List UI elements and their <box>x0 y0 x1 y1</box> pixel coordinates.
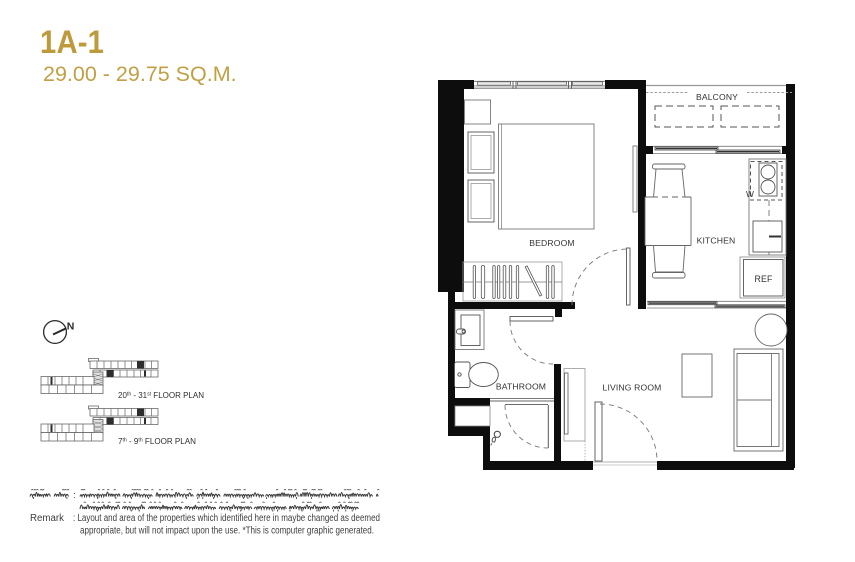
svg-text:appropriate, but will not impa: appropriate, but will not impact upon th… <box>80 526 374 537</box>
svg-text:BATHROOM: BATHROOM <box>496 382 546 392</box>
svg-text::: : <box>73 490 76 501</box>
svg-text:BALCONY: BALCONY <box>696 92 738 102</box>
svg-text:REF: REF <box>754 274 773 284</box>
svg-text:7th - 9th FLOOR PLAN: 7th - 9th FLOOR PLAN <box>118 436 196 446</box>
svg-text:N: N <box>67 321 75 333</box>
svg-text:Remark: Remark <box>30 513 64 524</box>
svg-text:20th - 31st FLOOR PLAN: 20th - 31st FLOOR PLAN <box>118 390 204 400</box>
svg-text:W: W <box>746 189 754 199</box>
svg-text:: Layout and area of the prope: : Layout and area of the properties whic… <box>73 513 380 524</box>
svg-text:BEDROOM: BEDROOM <box>529 238 574 248</box>
svg-text:LIVING ROOM: LIVING ROOM <box>603 383 662 393</box>
svg-text:KITCHEN: KITCHEN <box>697 236 736 246</box>
